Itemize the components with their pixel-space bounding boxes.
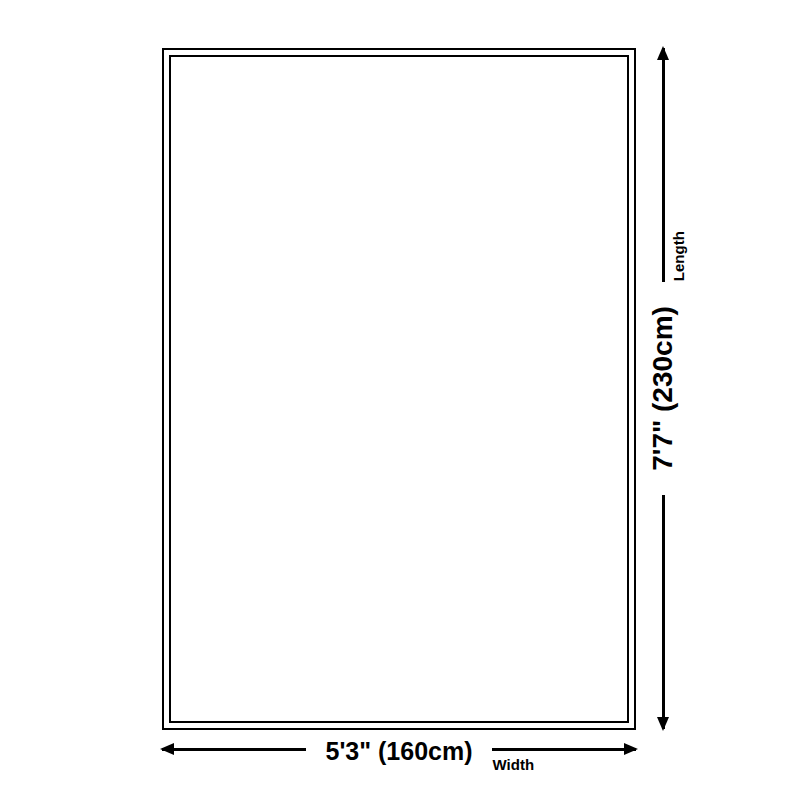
- length-arrow-top-segment: Length: [662, 48, 665, 282]
- width-dimension: 5'3" (160cm) Width: [162, 731, 636, 767]
- length-value: 7'7" (230cm): [649, 306, 677, 471]
- arrow-down-icon: [657, 717, 669, 731]
- width-arrow-right-segment: Width: [492, 748, 636, 751]
- arrow-left-icon: [160, 743, 174, 755]
- length-dimension: 7'7" (230cm) Length: [645, 48, 681, 729]
- width-value: 5'3" (160cm): [325, 739, 472, 764]
- arrow-right-icon: [624, 743, 638, 755]
- rug-size-diagram: 5'3" (160cm) Width 7'7" (230cm) Length: [0, 0, 800, 800]
- length-label: Length: [671, 231, 686, 281]
- arrow-up-icon: [657, 46, 669, 60]
- width-arrow-left-segment: [162, 748, 306, 751]
- width-label: Width: [493, 757, 535, 772]
- rug-outline: [162, 48, 636, 730]
- rug-inner-border: [169, 55, 629, 723]
- length-arrow-bottom-segment: [662, 495, 665, 729]
